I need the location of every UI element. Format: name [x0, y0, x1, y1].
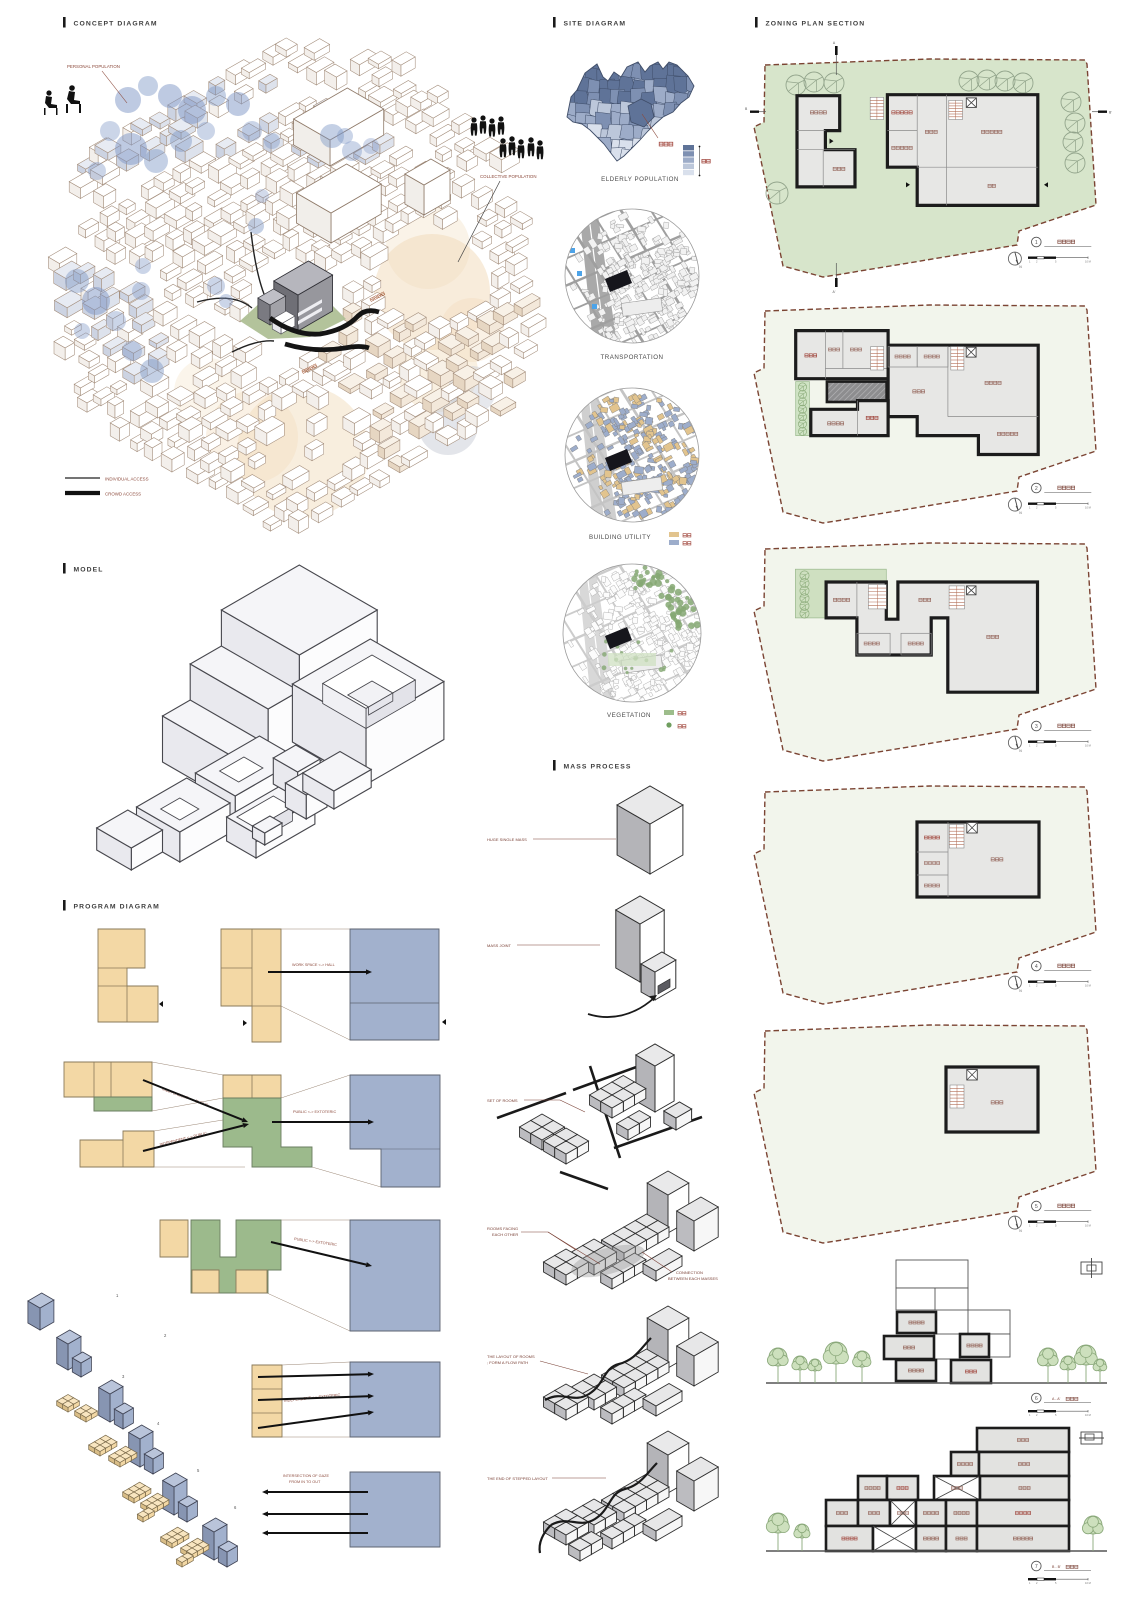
svg-text:INDIVIDUAL ACCESS: INDIVIDUAL ACCESS: [105, 477, 149, 482]
svg-text:MODEL: MODEL: [74, 567, 104, 574]
svg-text:6: 6: [234, 1505, 237, 1510]
svg-text:A - A': A - A': [1052, 1397, 1061, 1401]
svg-text:A: A: [833, 41, 836, 45]
svg-text:5: 5: [1055, 260, 1057, 264]
svg-text:2: 2: [1035, 486, 1038, 492]
svg-text:1: 1: [1029, 1413, 1031, 1417]
svg-text:BETWEEN EACH MASSES: BETWEEN EACH MASSES: [668, 1276, 718, 1281]
svg-text:CONNECTION: CONNECTION: [676, 1270, 703, 1275]
svg-text:1: 1: [1029, 1224, 1031, 1228]
svg-text:2: 2: [1036, 1413, 1038, 1417]
svg-text:B': B': [1109, 111, 1112, 115]
svg-text:1: 1: [1035, 240, 1038, 246]
svg-text:EACH OTHER: EACH OTHER: [492, 1232, 518, 1237]
svg-text:CONCEPT DIAGRAM: CONCEPT DIAGRAM: [74, 21, 158, 28]
svg-text:1: 1: [1029, 506, 1031, 510]
svg-text:2: 2: [1036, 1224, 1038, 1228]
svg-text:6: 6: [1035, 1396, 1038, 1402]
svg-text:PUBLIC <-> EXTOTERIC: PUBLIC <-> EXTOTERIC: [293, 1110, 336, 1114]
svg-text:B - B': B - B': [1052, 1565, 1061, 1569]
svg-text:SITE DIAGRAM: SITE DIAGRAM: [564, 21, 627, 28]
svg-text:TRANSPORTATION: TRANSPORTATION: [600, 354, 663, 361]
svg-text:2: 2: [1036, 1581, 1038, 1585]
svg-text:4: 4: [1035, 964, 1038, 970]
svg-text:7: 7: [1035, 1564, 1038, 1570]
svg-text:THE LAYOUT OF ROOMS: THE LAYOUT OF ROOMS: [487, 1354, 535, 1359]
svg-text:5: 5: [1055, 744, 1057, 748]
svg-text:FROM IN TO OUT: FROM IN TO OUT: [289, 1480, 321, 1484]
svg-text:10 M: 10 M: [1085, 1224, 1091, 1228]
svg-text:1: 1: [116, 1293, 119, 1298]
svg-text:THE END OF STEPPED LAYOUT: THE END OF STEPPED LAYOUT: [487, 1476, 548, 1481]
svg-text:10 M: 10 M: [1085, 984, 1091, 988]
svg-text:2: 2: [1036, 506, 1038, 510]
svg-text:5: 5: [1035, 1204, 1038, 1210]
svg-text:1: 1: [1029, 744, 1031, 748]
svg-text:INTERSECTION OF GAZE: INTERSECTION OF GAZE: [283, 1474, 329, 1478]
svg-text:5: 5: [1055, 1224, 1057, 1228]
svg-text:5: 5: [1055, 506, 1057, 510]
svg-text:ROOMS FACING: ROOMS FACING: [487, 1226, 518, 1231]
svg-text:2: 2: [164, 1333, 167, 1338]
svg-text:3: 3: [122, 1374, 125, 1379]
svg-text:N: N: [1019, 749, 1022, 753]
svg-text:10 M: 10 M: [1085, 1581, 1091, 1585]
svg-text:N: N: [1019, 265, 1022, 269]
svg-text:2: 2: [1036, 260, 1038, 264]
svg-text:MASS JOINT: MASS JOINT: [487, 943, 512, 948]
svg-text:4: 4: [157, 1421, 160, 1426]
svg-text:COLLECTIVE POPULATION: COLLECTIVE POPULATION: [480, 174, 537, 179]
svg-text:HUGE SINGLE MASS: HUGE SINGLE MASS: [487, 837, 527, 842]
svg-text:PERSONAL POPULATION: PERSONAL POPULATION: [67, 64, 120, 69]
svg-text:5: 5: [197, 1468, 200, 1473]
svg-text:PUBLIC <-> EXTOTERIC: PUBLIC <-> EXTOTERIC: [294, 1237, 338, 1247]
svg-text:ELDERLY POPULATION: ELDERLY POPULATION: [601, 176, 679, 183]
svg-text:B: B: [745, 107, 748, 111]
svg-text:2: 2: [1036, 984, 1038, 988]
svg-text:5: 5: [1055, 1413, 1057, 1417]
svg-text:1: 1: [1029, 260, 1031, 264]
svg-text:1: 1: [1029, 1581, 1031, 1585]
svg-text:MASS PROCESS: MASS PROCESS: [564, 764, 632, 771]
svg-text:CROWD ACCESS: CROWD ACCESS: [105, 492, 141, 497]
svg-text:5: 5: [1055, 984, 1057, 988]
svg-text:10 M: 10 M: [1085, 1413, 1091, 1417]
svg-text:N: N: [1019, 989, 1022, 993]
svg-text:2: 2: [1036, 744, 1038, 748]
svg-text:1: 1: [1029, 984, 1031, 988]
svg-text:10 M: 10 M: [1085, 506, 1091, 510]
svg-text:10 M: 10 M: [1085, 744, 1091, 748]
svg-text:VEGETATION: VEGETATION: [607, 712, 651, 719]
svg-text:5: 5: [1055, 1581, 1057, 1585]
svg-text:3: 3: [1035, 724, 1038, 730]
svg-text:N: N: [1019, 1229, 1022, 1233]
svg-text:A': A': [833, 290, 836, 294]
svg-text:PROGRAM DIAGRAM: PROGRAM DIAGRAM: [74, 904, 160, 911]
svg-text:; FORM A FLOW PATH: ; FORM A FLOW PATH: [487, 1360, 528, 1365]
svg-text:WORK SPACE <-> HALL: WORK SPACE <-> HALL: [292, 963, 335, 967]
svg-text:SET OF ROOMS: SET OF ROOMS: [487, 1098, 518, 1103]
svg-text:BUILDING UTILITY: BUILDING UTILITY: [589, 534, 651, 541]
svg-text:ZONING PLAN SECTION: ZONING PLAN SECTION: [766, 21, 866, 28]
svg-text:N: N: [1019, 511, 1022, 515]
svg-text:10 M: 10 M: [1085, 260, 1091, 264]
